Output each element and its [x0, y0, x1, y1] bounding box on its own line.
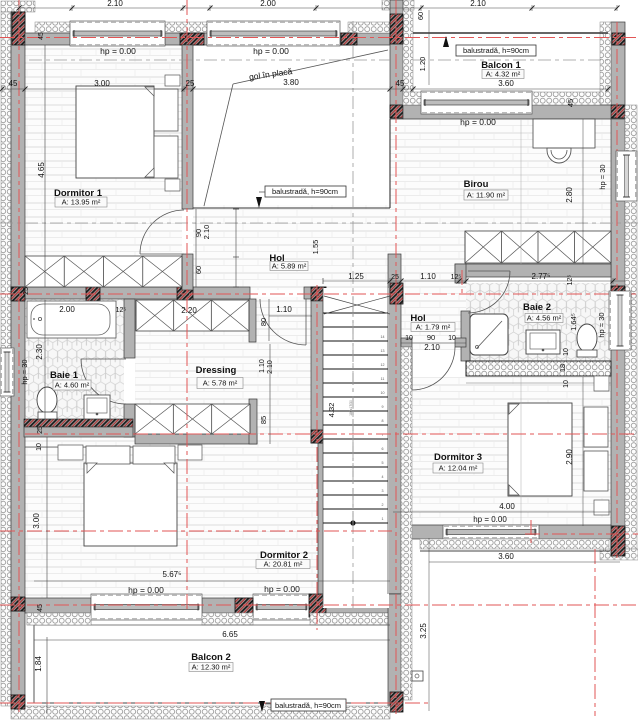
svg-text:1.64⁵: 1.64⁵ [569, 313, 578, 331]
svg-text:5: 5 [382, 461, 384, 465]
svg-text:hp = 0.00: hp = 0.00 [100, 46, 136, 56]
svg-text:A: 4.56 m²: A: 4.56 m² [527, 314, 562, 323]
svg-text:10: 10 [36, 443, 43, 451]
svg-text:1.10: 1.10 [420, 272, 436, 281]
svg-text:12⁵: 12⁵ [567, 275, 574, 286]
svg-text:Baie 2: Baie 2 [523, 302, 551, 313]
svg-text:balustradă, h=90cm: balustradă, h=90cm [275, 701, 341, 710]
svg-text:Dressing: Dressing [196, 365, 237, 376]
svg-text:9: 9 [382, 405, 384, 409]
svg-text:14: 14 [381, 335, 385, 339]
svg-text:Baie 1: Baie 1 [50, 370, 79, 381]
svg-text:2.10: 2.10 [202, 225, 211, 240]
svg-text:2.30: 2.30 [35, 344, 44, 360]
svg-text:5.67⁵: 5.67⁵ [163, 570, 182, 579]
svg-text:2.20: 2.20 [181, 306, 197, 315]
svg-text:4.65: 4.65 [37, 162, 46, 178]
svg-text:Balcon 2: Balcon 2 [191, 652, 231, 663]
svg-text:hp = 0.00: hp = 0.00 [264, 584, 300, 594]
svg-text:25: 25 [186, 79, 195, 88]
svg-text:A: 5.89 m²: A: 5.89 m² [272, 262, 307, 271]
svg-text:12⁵: 12⁵ [451, 274, 462, 281]
svg-text:25: 25 [23, 287, 30, 295]
svg-text:2.77⁵: 2.77⁵ [532, 272, 551, 281]
svg-text:hp = 0.00: hp = 0.00 [460, 117, 496, 127]
svg-text:1.10: 1.10 [276, 305, 292, 314]
svg-text:4: 4 [382, 475, 384, 479]
svg-text:balustradă, h=90cm: balustradă, h=90cm [272, 187, 338, 196]
svg-text:A: 20.81 m²: A: 20.81 m² [264, 560, 303, 569]
svg-text:hp = 0.00: hp = 0.00 [128, 585, 164, 595]
svg-text:45: 45 [566, 99, 575, 107]
svg-text:18: 18 [558, 364, 567, 372]
svg-text:2.90: 2.90 [565, 449, 574, 465]
svg-text:1: 1 [382, 517, 384, 521]
svg-text:2.10: 2.10 [267, 360, 274, 374]
svg-text:80: 80 [259, 318, 268, 326]
svg-text:11: 11 [381, 377, 385, 381]
svg-text:3.00: 3.00 [32, 513, 41, 529]
svg-text:25: 25 [37, 426, 44, 434]
svg-text:8: 8 [382, 419, 384, 423]
svg-text:A: 13.95 m²: A: 13.95 m² [62, 198, 101, 207]
svg-text:hp = 30: hp = 30 [597, 312, 606, 337]
svg-text:A: 5.78 m²: A: 5.78 m² [203, 379, 238, 388]
svg-text:4.00: 4.00 [499, 502, 515, 511]
svg-text:A: 12.30 m²: A: 12.30 m² [192, 663, 231, 672]
svg-text:2.80: 2.80 [565, 187, 574, 203]
svg-text:1.10: 1.10 [259, 359, 266, 373]
svg-text:3.25: 3.25 [419, 623, 428, 639]
svg-text:3: 3 [382, 489, 384, 493]
svg-text:85: 85 [259, 416, 268, 424]
svg-text:hp = 30: hp = 30 [598, 164, 607, 189]
svg-text:3.60: 3.60 [498, 79, 514, 88]
svg-text:13: 13 [381, 349, 385, 353]
svg-text:A: 11.90 m²: A: 11.90 m² [467, 191, 506, 200]
svg-text:1.84: 1.84 [34, 656, 43, 672]
svg-text:A: 1.79 m²: A: 1.79 m² [416, 323, 451, 332]
svg-text:Birou: Birou [464, 179, 489, 190]
svg-text:2.10: 2.10 [107, 0, 123, 8]
svg-text:3.80: 3.80 [283, 78, 299, 87]
svg-text:balustradă, h=90cm: balustradă, h=90cm [463, 46, 529, 55]
svg-text:2.00: 2.00 [59, 305, 75, 314]
svg-text:A: 4.32 m²: A: 4.32 m² [486, 70, 521, 79]
svg-text:2.10: 2.10 [424, 343, 440, 352]
svg-text:hp = 0.00: hp = 0.00 [253, 46, 289, 56]
svg-text:10: 10 [563, 380, 570, 388]
svg-text:12: 12 [381, 363, 385, 367]
svg-text:10: 10 [563, 348, 570, 356]
svg-text:45: 45 [37, 604, 44, 612]
svg-text:hp = 30: hp = 30 [20, 359, 29, 384]
svg-text:1.25: 1.25 [348, 272, 364, 281]
svg-text:10: 10 [405, 335, 413, 342]
svg-text:10: 10 [381, 391, 385, 395]
svg-text:3.60: 3.60 [498, 552, 514, 561]
svg-text:12⁵: 12⁵ [116, 307, 127, 314]
svg-text:25: 25 [391, 274, 399, 281]
svg-text:1.55: 1.55 [311, 240, 320, 255]
svg-text:3.00: 3.00 [94, 79, 110, 88]
svg-text:1.20: 1.20 [418, 57, 427, 72]
svg-text:2: 2 [382, 503, 384, 507]
svg-text:2.00: 2.00 [260, 0, 276, 8]
svg-text:90: 90 [427, 333, 435, 342]
svg-text:6: 6 [382, 447, 384, 451]
svg-text:60: 60 [194, 266, 203, 274]
svg-text:A: 4.60 m²: A: 4.60 m² [55, 381, 90, 390]
svg-text:45: 45 [38, 32, 45, 40]
svg-text:2.10: 2.10 [470, 0, 486, 8]
svg-text:hp = 0.00: hp = 0.00 [473, 515, 507, 524]
svg-text:45: 45 [9, 79, 18, 88]
svg-text:10: 10 [448, 335, 456, 342]
svg-text:A: 12.04 m²: A: 12.04 m² [439, 464, 478, 473]
svg-text:4.32: 4.32 [327, 403, 336, 418]
svg-text:180x17/30: 180x17/30 [349, 400, 353, 416]
svg-text:6.65: 6.65 [222, 630, 238, 639]
svg-text:60: 60 [416, 12, 425, 20]
svg-text:Dormitor 3: Dormitor 3 [434, 452, 482, 463]
svg-text:45: 45 [396, 79, 405, 88]
